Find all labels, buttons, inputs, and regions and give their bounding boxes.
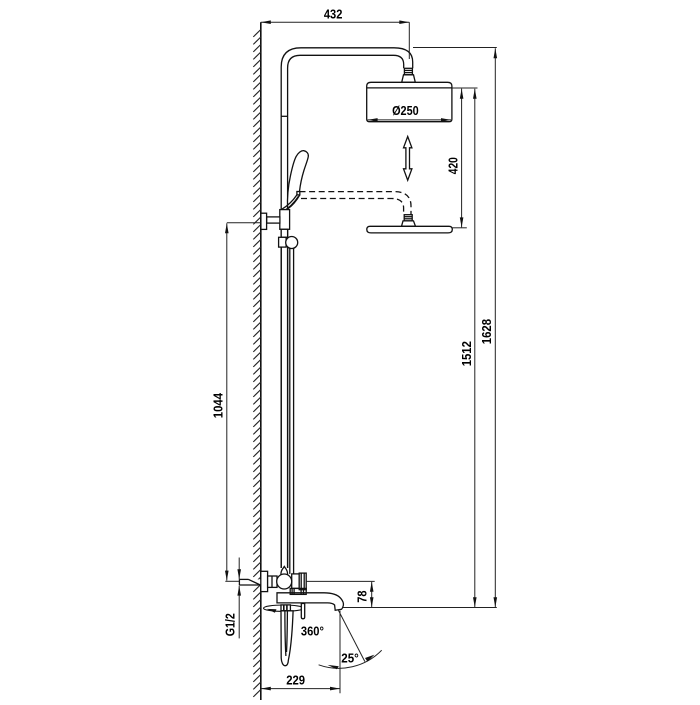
svg-text:78: 78 (354, 591, 369, 603)
svg-text:360°: 360° (301, 623, 324, 638)
svg-text:25°: 25° (341, 650, 359, 665)
svg-text:G1/2: G1/2 (222, 613, 237, 636)
svg-text:420: 420 (445, 157, 460, 174)
svg-text:432: 432 (324, 6, 343, 21)
svg-text:1044: 1044 (210, 392, 225, 418)
svg-text:1512: 1512 (459, 341, 474, 366)
svg-text:Ø250: Ø250 (392, 103, 419, 118)
svg-text:229: 229 (286, 672, 305, 687)
svg-text:1628: 1628 (479, 319, 494, 344)
